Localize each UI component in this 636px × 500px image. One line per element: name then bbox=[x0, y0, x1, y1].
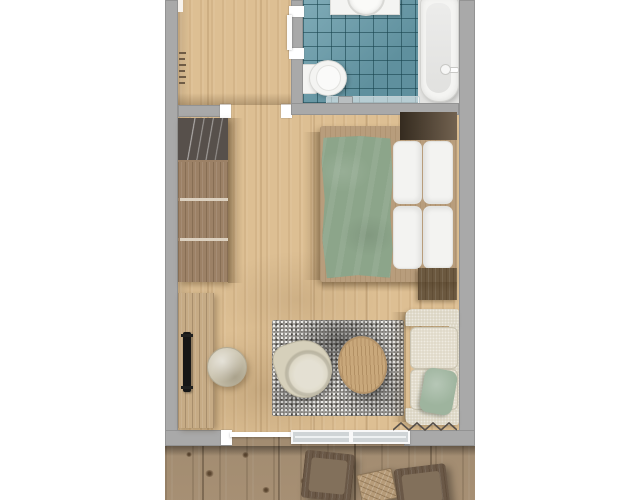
stool bbox=[207, 347, 247, 387]
wall-left bbox=[165, 0, 178, 446]
bed-pillow bbox=[423, 206, 453, 269]
bed-duvet-green bbox=[321, 136, 393, 279]
bathroom-door-leaf bbox=[287, 15, 292, 50]
coat-hooks bbox=[179, 52, 188, 92]
tv bbox=[183, 332, 191, 392]
bathtub-basin bbox=[426, 3, 451, 93]
zigzag-decor bbox=[393, 421, 457, 432]
hall-wall-shadow bbox=[178, 93, 291, 105]
bed-pillow bbox=[423, 141, 453, 204]
floor-plan-image bbox=[0, 0, 636, 500]
wardrobe-section bbox=[178, 201, 228, 238]
doorway-jamb bbox=[220, 104, 231, 118]
tv-foot bbox=[181, 334, 193, 337]
nightstand-top bbox=[400, 112, 457, 140]
bed-floor-shadow bbox=[303, 132, 320, 280]
deck-knot bbox=[205, 470, 214, 477]
sofa bbox=[405, 309, 459, 425]
wall-right bbox=[459, 0, 475, 446]
toilet-seat bbox=[316, 65, 341, 91]
wardrobe-floor-shadow bbox=[228, 118, 243, 283]
lounge-chair-left bbox=[301, 450, 356, 500]
wardrobe-glass-panel bbox=[178, 118, 228, 160]
entry-door-frame bbox=[178, 0, 183, 12]
bed-duvet-white bbox=[393, 206, 422, 269]
bathtub-faucet-knob bbox=[440, 64, 451, 75]
sofa-floor-shadow bbox=[391, 312, 406, 422]
sofa-seat-cushion bbox=[410, 327, 458, 369]
deck-knot bbox=[262, 487, 270, 493]
terrace-door-threshold bbox=[230, 432, 292, 437]
wardrobe bbox=[178, 118, 228, 282]
tv-foot bbox=[181, 386, 193, 389]
wall-bottom-right-segment bbox=[404, 430, 475, 446]
lounge-chair-right bbox=[394, 463, 451, 500]
wardrobe-section bbox=[178, 241, 228, 282]
lounge-chair-cushion bbox=[401, 471, 442, 500]
wardrobe-section bbox=[178, 162, 228, 198]
bed-duvet-white bbox=[393, 141, 422, 204]
window-mullion bbox=[349, 432, 353, 442]
lounge-chair-cushion bbox=[308, 457, 347, 495]
south-window bbox=[291, 430, 410, 444]
bathtub bbox=[420, 0, 459, 102]
bed-floor-shadow-south bbox=[322, 282, 457, 292]
